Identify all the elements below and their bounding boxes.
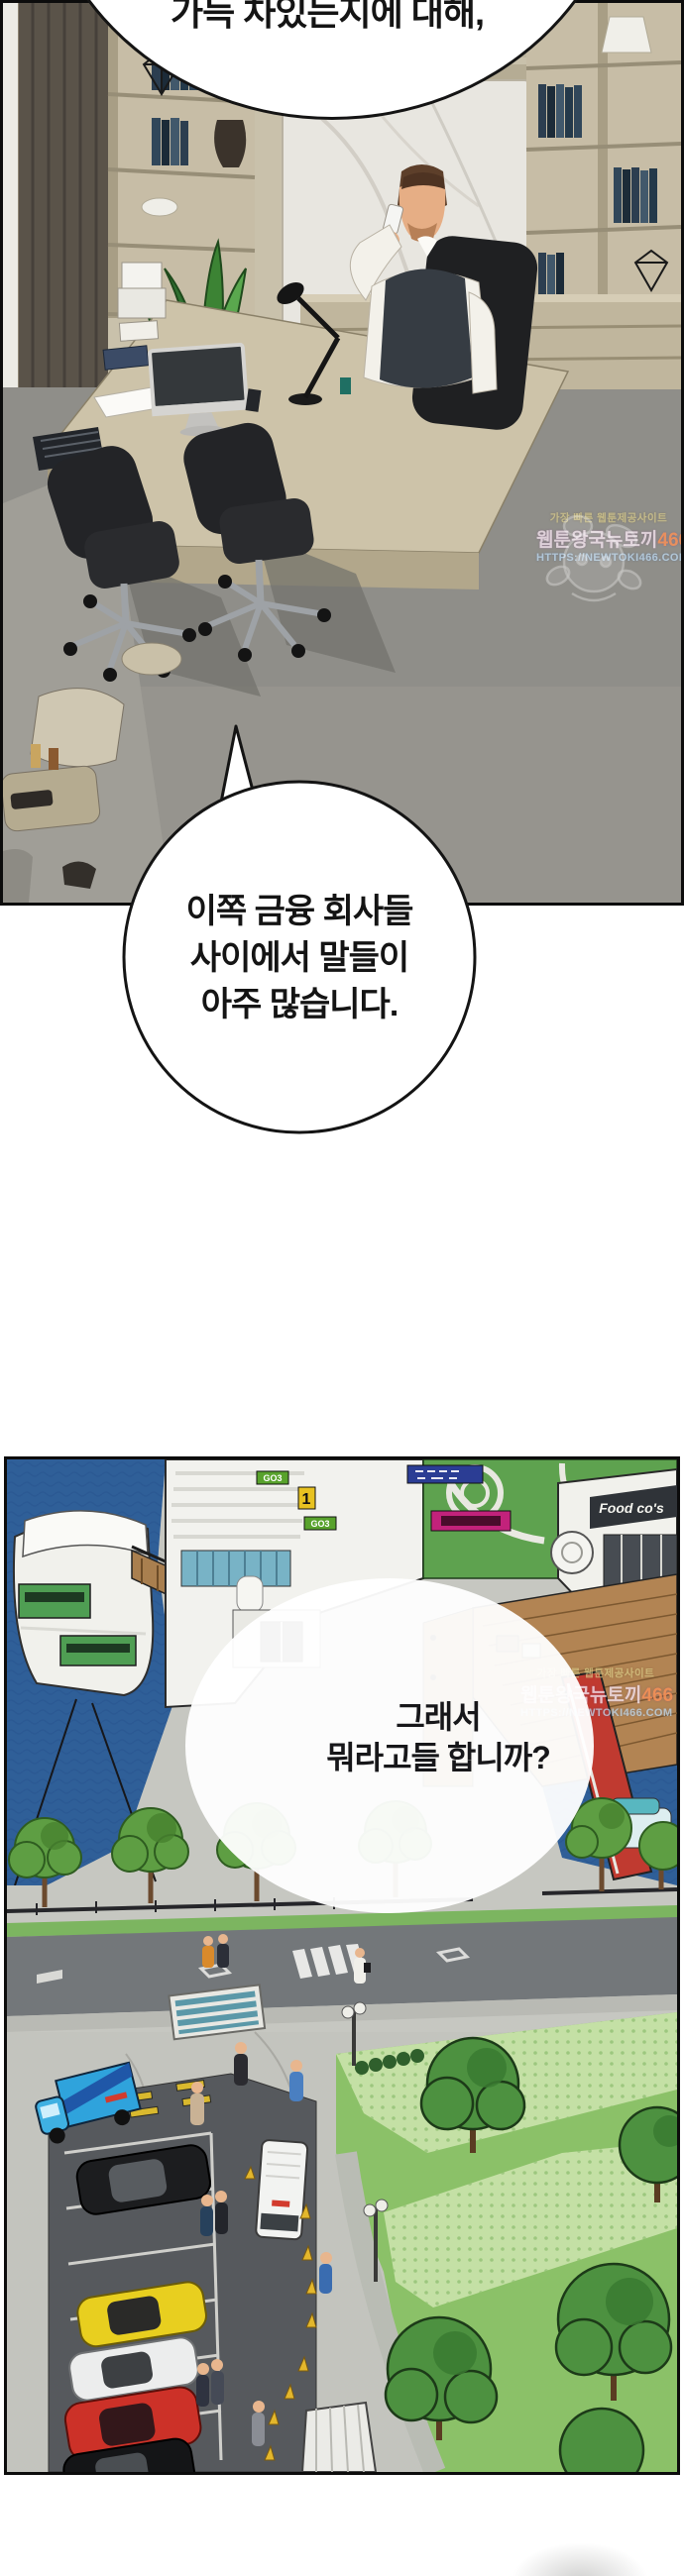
cafe-sign-text: Food co's bbox=[599, 1500, 664, 1516]
truck-white bbox=[256, 2140, 308, 2240]
dialog-line: 뭐라고들 합니까? bbox=[285, 1738, 592, 1778]
spiral-staircase bbox=[551, 1532, 593, 1573]
webtoon-page: 가장 빠른 웹툰제공사이트 웹툰왕국뉴토끼466 HTTPS://NEWTOKI… bbox=[0, 0, 684, 2576]
park bbox=[336, 2002, 677, 2472]
go-sign-text: GO3 bbox=[310, 1519, 329, 1529]
dialog-line: 사이에서 말들이 bbox=[121, 935, 478, 982]
ferry-boat bbox=[14, 1511, 153, 1695]
speech-bubble-office-text: 이쪽 금융 회사들 사이에서 말들이 아주 많습니다. bbox=[121, 889, 478, 1028]
go-sign-text: GO3 bbox=[263, 1473, 282, 1483]
parking-lot bbox=[49, 2074, 316, 2472]
dialog-line: 그래서 bbox=[285, 1697, 592, 1738]
vest bbox=[380, 268, 473, 387]
blue-banner-sign bbox=[407, 1465, 483, 1483]
dialog-line: 아주 많습니다. bbox=[121, 982, 478, 1028]
loading-canopy bbox=[302, 2403, 376, 2472]
pen-holder bbox=[340, 377, 351, 394]
dialog-line: 이쪽 금융 회사들 bbox=[121, 889, 478, 935]
gate-number-text: 1 bbox=[302, 1491, 311, 1508]
speech-bubble-top-text: 가득 차있는지에 대해, bbox=[79, 0, 575, 36]
bowl-lamp bbox=[142, 198, 177, 216]
next-panel-hint bbox=[511, 2542, 649, 2576]
speech-bubble-harbor-text: 그래서 뭐라고들 합니까? bbox=[285, 1697, 592, 1778]
panel-harbor-scene: GO3 GO3 1 Food co's bbox=[4, 1456, 680, 2475]
lamp-shade bbox=[602, 17, 651, 53]
